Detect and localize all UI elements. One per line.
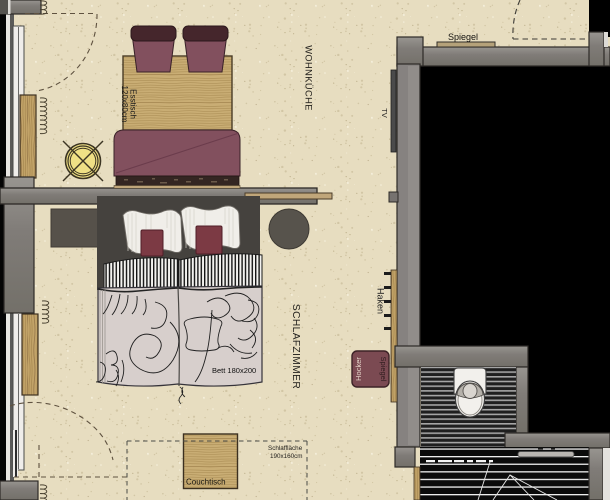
svg-text:SCHLAFZIMMER: SCHLAFZIMMER [290,304,301,389]
svg-text:Couchtisch: Couchtisch [186,478,226,487]
svg-text:Hocker: Hocker [354,357,363,381]
svg-text:Esstisch120x80cm: Esstisch120x80cm [120,86,138,123]
svg-text:WOHNKÜCHE: WOHNKÜCHE [304,45,314,111]
svg-text:Spiegel: Spiegel [448,32,478,42]
svg-text:Bett 180x200: Bett 180x200 [212,366,256,375]
svg-text:TV: TV [380,108,389,118]
svg-text:190x160cm: 190x160cm [270,453,303,460]
svg-text:Schlaffläche: Schlaffläche [268,445,303,452]
svg-text:Haken: Haken [376,288,386,314]
svg-text:Spiegel: Spiegel [379,356,388,381]
